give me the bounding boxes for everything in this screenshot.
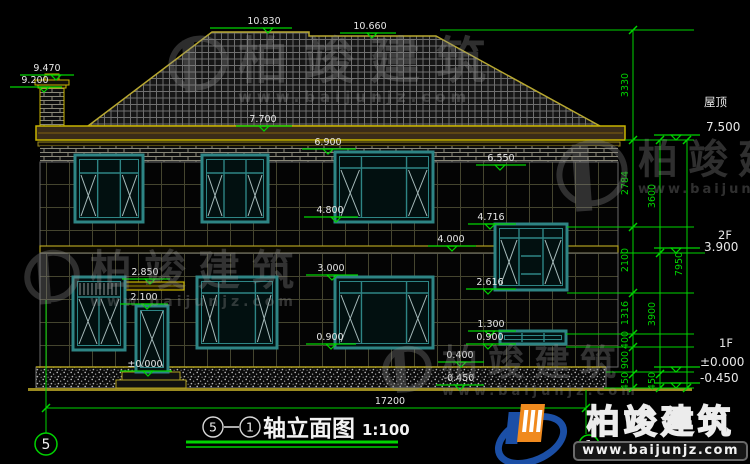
elevation-value: 6.900 [314, 137, 341, 148]
window [500, 331, 566, 344]
title-axis-to: 1 [246, 420, 254, 435]
dim-900: 900 [620, 351, 631, 369]
building-facade [28, 32, 692, 391]
roof-label: 屋顶 [704, 95, 727, 109]
title-name: 轴立面图 [263, 415, 355, 442]
window [197, 277, 277, 348]
elevation-value: 9.470 [33, 63, 60, 74]
floor1-label: 1F [719, 336, 733, 350]
elevation-value: 2.850 [131, 267, 158, 278]
window [335, 152, 433, 222]
dim-400: 400 [620, 331, 631, 349]
floor2-elev: 3.900 [704, 240, 738, 254]
company-logo: 柏竣建筑 www.baijunjz.com [493, 402, 748, 464]
dim-17200: 17200 [375, 396, 405, 407]
entry-steps [116, 372, 186, 388]
elevation-value: 0.400 [446, 350, 473, 361]
window [73, 277, 125, 350]
floor1-below: -0.450 [700, 371, 739, 385]
dim-1316: 1316 [620, 301, 631, 325]
roof-elev: 7.500 [706, 120, 740, 134]
elevation-value: -0.450 [444, 373, 475, 384]
window [202, 155, 268, 222]
dim-450b: 450 [647, 372, 658, 390]
elevation-value: 7.700 [249, 114, 276, 125]
elevation-value: 4.000 [437, 234, 464, 245]
elevation-value: ±0.000 [127, 359, 162, 370]
company-logo-icon [493, 402, 565, 464]
elevation-value: 4.800 [316, 205, 343, 216]
window [495, 224, 567, 290]
elevation-value: 2.616 [476, 277, 503, 288]
elevation-value: 10.830 [247, 16, 280, 27]
company-logo-brand: 柏竣建筑 [587, 405, 735, 440]
view-title: 5 1 轴立面图 1:100 [186, 415, 410, 447]
elevation-marker: 10.830 [210, 16, 292, 33]
elevation-value: 2.100 [130, 292, 157, 303]
elevation-value: 10.660 [353, 21, 386, 32]
dim-3330: 3330 [620, 73, 631, 97]
elevation-value: 3.000 [317, 263, 344, 274]
elevation-value: 0.900 [316, 332, 343, 343]
elevation-canvas: 3330 2784 2100 1316 400 900 450 3600 390… [0, 0, 750, 464]
dim-3600: 3600 [647, 184, 658, 208]
dim-2784: 2784 [620, 171, 631, 195]
window [75, 155, 143, 222]
dim-3900: 3900 [647, 302, 658, 326]
dim-7950: 7950 [674, 252, 685, 276]
elevation-value: 4.716 [477, 212, 504, 223]
hip-roof [88, 32, 600, 126]
floor1-zero: ±0.000 [700, 355, 744, 369]
elevation-value: 0.900 [476, 332, 503, 343]
company-logo-url: www.baijunjz.com [573, 441, 748, 461]
storey-labels: 屋顶 7.500 2F 3.900 1F ±0.000 -0.450 [700, 95, 744, 385]
title-scale: 1:100 [362, 421, 410, 439]
axis-bubble-5: 5 [42, 437, 51, 453]
elevation-value: 9.200 [21, 75, 48, 86]
dim-2100: 2100 [620, 248, 631, 272]
elevation-marker [654, 367, 700, 372]
title-axis-from: 5 [209, 420, 217, 435]
cad-elevation-drawing: 3330 2784 2100 1316 400 900 450 3600 390… [0, 0, 750, 464]
window [335, 277, 433, 348]
elevation-value: 6.550 [487, 153, 514, 164]
dim-450a: 450 [620, 372, 631, 390]
elevation-value: 1.300 [477, 319, 504, 330]
